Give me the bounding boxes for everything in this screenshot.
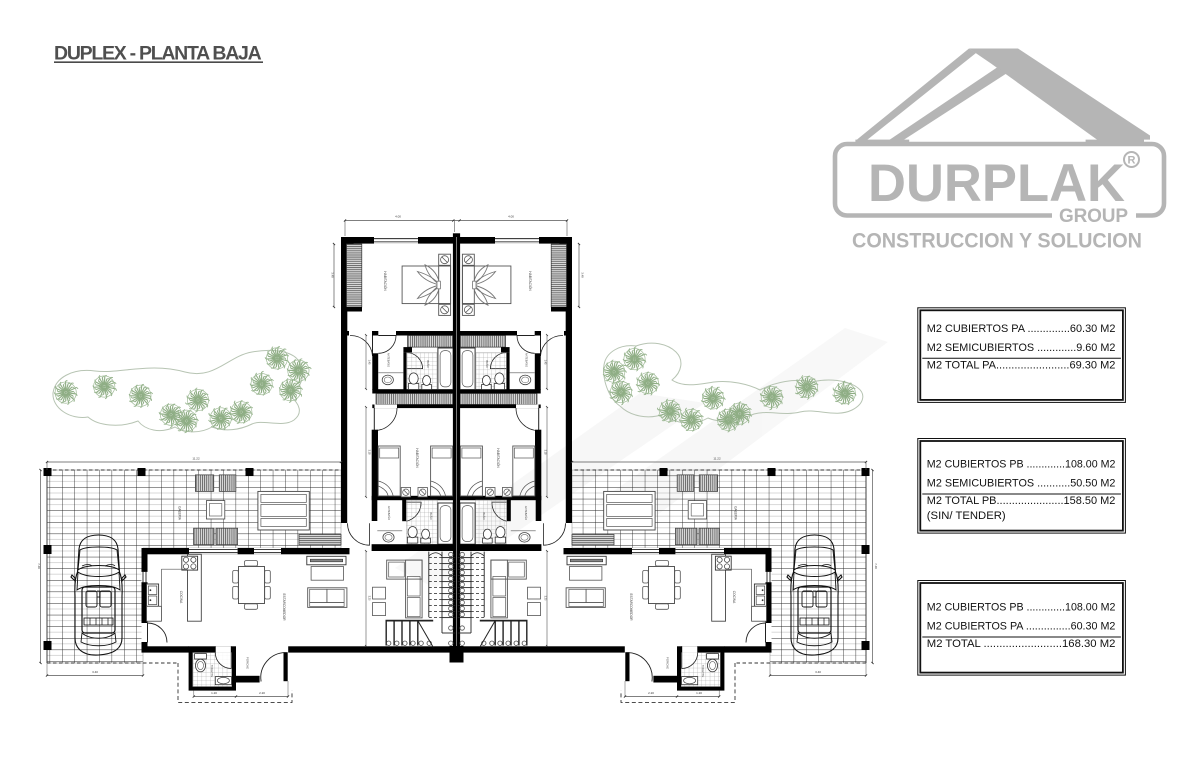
svg-text:4.00: 4.00 [508,215,514,219]
svg-text:7.48: 7.48 [37,563,41,569]
svg-text:PORCHE: PORCHE [666,657,670,669]
svg-text:COCINA: COCINA [179,591,183,604]
svg-text:DUPLEX - PLANTA BAJA: DUPLEX - PLANTA BAJA [54,43,262,65]
svg-text:3.40: 3.40 [815,670,821,674]
svg-text:M2 SEMICUBIERTOS ...........50: M2 SEMICUBIERTOS ...........50.50 M2 [927,478,1116,490]
svg-text:11.22: 11.22 [713,457,721,461]
svg-text:PORCHE: PORCHE [245,657,249,669]
svg-text:HABITACIÓN: HABITACIÓN [415,448,420,468]
svg-text:M2 TOTAL PA...................: M2 TOTAL PA........................69.30… [927,359,1116,371]
svg-text:1.20: 1.20 [696,691,702,695]
svg-text:M2 CUBIERTOS PA ..............: M2 CUBIERTOS PA ...............60.30 M2 [927,621,1116,633]
svg-text:3.49: 3.49 [581,272,585,278]
svg-text:3.20: 3.20 [367,596,370,601]
svg-text:(SIN/ TENDER): (SIN/ TENDER) [927,510,1006,522]
svg-text:2.20: 2.20 [259,691,265,695]
svg-text:3.40: 3.40 [92,670,98,674]
svg-text:COCINA: COCINA [732,591,736,604]
svg-text:11.22: 11.22 [192,457,200,461]
svg-text:ESTARCOMEDOR: ESTARCOMEDOR [629,593,633,621]
svg-text:M2 TOTAL PB...................: M2 TOTAL PB......................158.50 … [927,495,1116,507]
svg-text:1.45: 1.45 [544,360,547,365]
svg-text:7.48: 7.48 [874,563,878,569]
svg-text:3.18: 3.18 [544,450,547,455]
svg-text:M2 CUBIERTOS PB .............1: M2 CUBIERTOS PB .............108.00 M2 [927,602,1116,614]
svg-text:3.49: 3.49 [331,272,335,278]
svg-text:HABITACIÓN: HABITACIÓN [496,448,501,468]
svg-text:M2 TOTAL .....................: M2 TOTAL .........................168.30… [927,638,1116,650]
svg-text:1.45: 1.45 [367,360,370,365]
svg-text:M2 CUBIERTOS PA ..............: M2 CUBIERTOS PA ..............60.30 M2 [927,323,1116,335]
svg-text:3.20: 3.20 [544,596,547,601]
svg-text:ESTARCOMEDOR: ESTARCOMEDOR [282,593,286,621]
svg-text:2.20: 2.20 [648,691,654,695]
svg-text:DURPLAK: DURPLAK [868,154,1125,213]
svg-text:M2 SEMICUBIERTOS .............: M2 SEMICUBIERTOS .............9.60 M2 [927,342,1116,354]
svg-text:GALERIA: GALERIA [734,506,738,521]
svg-text:GALERIA: GALERIA [178,506,182,521]
svg-text:HABITACIÓN: HABITACIÓN [383,271,388,291]
svg-text:4.00: 4.00 [395,215,401,219]
svg-text:CONSTRUCCION Y SOLUCION: CONSTRUCCION Y SOLUCION [852,229,1142,253]
svg-text:3.18: 3.18 [367,450,370,455]
svg-text:R: R [1128,155,1136,167]
svg-text:M2 CUBIERTOS PB .............1: M2 CUBIERTOS PB .............108.00 M2 [927,459,1116,471]
svg-text:1.20: 1.20 [211,691,217,695]
svg-text:GROUP: GROUP [1059,206,1128,227]
svg-text:HABITACIÓN: HABITACIÓN [528,271,533,291]
